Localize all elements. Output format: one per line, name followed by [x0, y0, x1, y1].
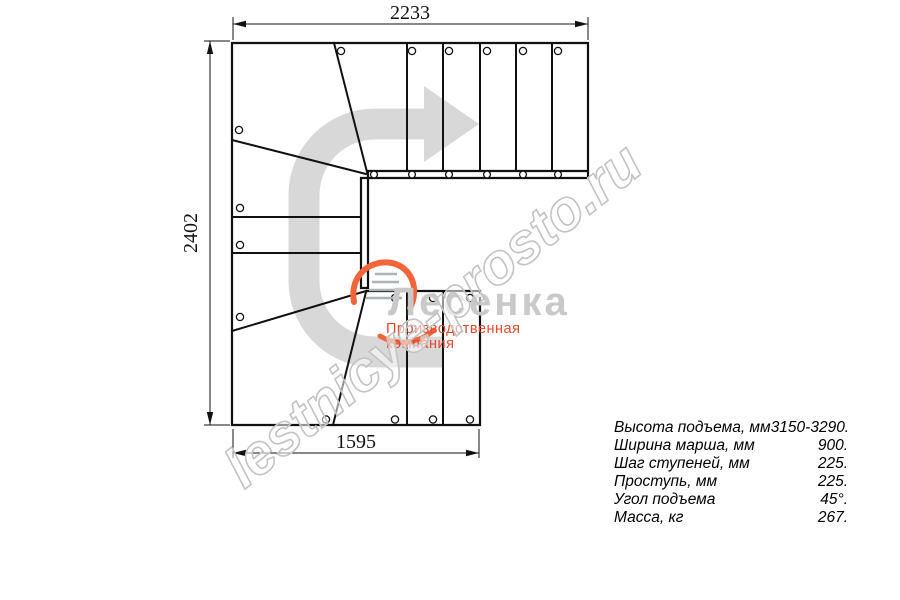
spec-value: 225.	[818, 473, 848, 491]
spec-label: Шаг ступеней, мм	[614, 455, 750, 473]
spec-value: 267.	[818, 509, 848, 527]
company-logo: Лесенка Производственная компания	[348, 256, 578, 346]
spec-value: 3150-3290.	[771, 419, 849, 437]
tread-lines	[232, 43, 552, 425]
spec-label: Масса, кг	[614, 509, 683, 527]
dimension-left-value: 2402	[180, 213, 202, 253]
dimension-bottom: 1595	[233, 429, 479, 458]
spec-value: 225.	[818, 455, 848, 473]
spec-value: 45°.	[820, 491, 848, 509]
dim-arrow-right	[466, 450, 479, 456]
spec-label: Высота подъема, мм	[614, 419, 771, 437]
dim-arrow-down	[207, 412, 213, 425]
dim-arrow-left	[233, 21, 246, 27]
spec-label: Угол подъема	[614, 491, 715, 509]
spec-row: Высота подъема, мм 3150-3290.	[614, 419, 848, 437]
spec-label: Проступь, мм	[614, 473, 717, 491]
specs-table: Высота подъема, мм 3150-3290. Ширина мар…	[614, 419, 848, 527]
dim-arrow-right	[575, 21, 588, 27]
spec-row: Масса, кг 267.	[614, 509, 848, 527]
logo-name: Лесенка	[388, 282, 570, 322]
dim-arrow-up	[207, 41, 213, 54]
spec-label: Ширина марша, мм	[614, 437, 755, 455]
spec-row: Шаг ступеней, мм 225.	[614, 455, 848, 473]
dimension-top: 2233	[233, 2, 588, 40]
stair-outline	[232, 43, 588, 425]
spec-value: 900.	[818, 437, 848, 455]
logo-tagline: Производственная компания	[386, 322, 578, 352]
dim-arrow-left	[233, 450, 246, 456]
spec-row: Ширина марша, мм 900.	[614, 437, 848, 455]
dimension-left: 2402	[180, 41, 230, 425]
dimension-top-value: 2233	[390, 2, 430, 24]
spec-row: Угол подъема 45°.	[614, 491, 848, 509]
stair-drawing-page: 2233 2402 1595 Лесенка Производственная …	[0, 0, 900, 600]
dimension-bottom-value: 1595	[336, 431, 376, 453]
spec-row: Проступь, мм 225.	[614, 473, 848, 491]
